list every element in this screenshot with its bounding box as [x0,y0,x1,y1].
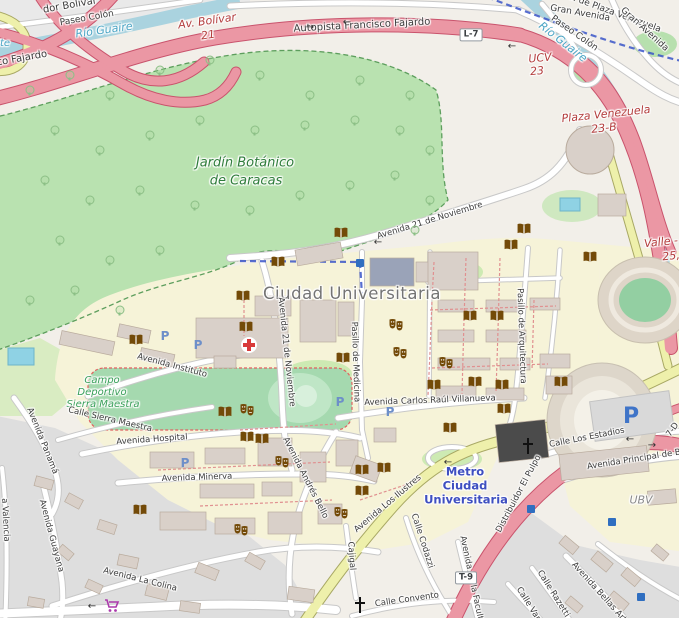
street-label: Avenida 21 de Noviembre [276,297,296,407]
campus-label: UBV [629,495,652,506]
tree-icon [426,146,435,155]
motorway-ref-label: 21 [200,29,215,42]
tree-icon [146,131,155,140]
tree-icon [391,171,400,180]
sportsground-name-label: Deportivo [77,388,126,398]
oneway-arrow-icon: ← [343,18,351,28]
tree-icon [246,206,255,215]
theatre-masks-icon [389,319,404,332]
tree-icon [306,91,315,100]
street-label: Calle Razetti [535,569,571,618]
church-cross-icon [522,438,534,454]
library-book-icon [583,251,598,264]
tree-icon [251,126,260,135]
church-cross-icon [354,597,366,613]
oneway-arrow-icon: ← [444,458,452,468]
tree-icon [356,76,365,85]
tree-icon [106,256,115,265]
street-label: Calle Convento [374,591,439,608]
street-label: Avenida 21 de Noviembre [376,201,484,241]
water-label: te [0,39,10,49]
tree-icon [406,91,415,100]
library-book-icon [355,485,370,498]
street-label: a Valencia [0,498,10,542]
tree-icon [411,226,420,235]
street-label: Avenida Bellas Artes [570,561,635,618]
map-labels-layer: Jardín Botánicode CaracasCampoDeportivoS… [0,0,679,618]
oneway-arrow-icon: → [306,23,314,33]
library-book-icon [271,256,286,269]
street-label: co Fajardo [0,50,48,69]
library-book-icon [463,310,478,323]
street-label: Pasillo de Arquitectura [515,288,527,384]
motorway-ref-label: 25, [662,250,679,263]
tree-icon [116,306,125,315]
theatre-masks-icon [439,357,454,370]
road-ref-badge: L-7 [460,28,483,41]
street-label: Avenida La Colina [102,567,178,594]
map-canvas[interactable]: Jardín Botánicode CaracasCampoDeportivoS… [0,0,679,618]
metro-station-label: Universitaria [424,494,508,506]
park-name-label: Jardín Botánico [196,157,294,170]
street-label: Pasillo de Medicina [349,322,360,403]
street-label: Avenida Carlos Raúl Villanueva [364,394,496,407]
street-label: Avenida Andrés Bello [281,436,329,520]
tree-icon [206,56,215,65]
library-book-icon [239,321,254,334]
street-label: Avenida Principal de B [587,448,679,471]
oneway-arrow-icon: ← [626,435,634,445]
theatre-masks-icon [234,524,249,537]
street-label: Avenida Instituto [136,353,208,380]
tree-icon [26,86,35,95]
street-label: Cajigal [346,541,356,570]
parking-icon: P [336,396,345,408]
tree-icon [86,196,95,205]
park-name-label: de Caracas [210,175,283,188]
library-book-icon [517,223,532,236]
street-label: Avenida Minerva [162,473,233,484]
library-book-icon [334,227,349,240]
hospital-cross-icon [241,337,258,354]
tree-icon [41,176,50,185]
street-label: Calle Codazzi [409,513,435,570]
library-book-icon [255,433,270,446]
library-book-icon [129,334,144,347]
library-book-icon [427,379,442,392]
library-book-icon [240,431,255,444]
tree-icon [156,66,165,75]
library-book-icon [490,310,505,323]
tree-icon [26,296,35,305]
oneway-arrow-icon: ← [88,602,96,612]
theatre-masks-icon [393,347,408,360]
library-book-icon [497,403,512,416]
motorway-ref-label: 23-B [591,121,618,135]
parking-icon: P [386,406,395,418]
street-label: Gran Avenida [618,6,669,53]
metro-station-icon [637,593,645,601]
oneway-arrow-icon: → [648,441,656,451]
theatre-masks-icon [334,507,349,520]
metro-station-icon [356,259,364,267]
tree-icon [56,236,65,245]
library-book-icon [377,462,392,475]
parking-icon: P [181,457,190,469]
parking-icon: P [194,339,203,351]
library-book-icon [443,422,458,435]
street-label: Calle Sierra Maestra [67,406,152,434]
motorway-ref-label: 23 [530,65,545,77]
library-book-icon [133,504,148,517]
library-book-icon [504,239,519,252]
tree-icon [256,71,265,80]
tree-icon [346,181,355,190]
street-label: Avenida Guayana [37,499,65,573]
theatre-masks-icon [275,456,290,469]
library-book-icon [218,406,233,419]
street-label: Avenida Panamá [25,407,59,476]
library-book-icon [495,379,510,392]
sportsground-name-label: Campo [84,376,119,386]
parking-main-icon: P [623,406,639,428]
street-label: 7-D [665,421,679,438]
motorway-ref-label: UCV [528,52,552,65]
tree-icon [51,126,60,135]
tree-icon [426,196,435,205]
motorway-ref-label: Valle - [644,235,679,249]
road-ref-badge: T-9 [455,571,477,584]
street-label: Calle Var [514,586,541,618]
library-book-icon [554,376,569,389]
street-label: Calle Los Estadios [549,427,626,450]
tree-icon [191,201,200,210]
oneway-arrow-icon: ← [374,238,382,248]
theatre-masks-icon [240,404,255,417]
oneway-arrow-icon: ← [508,42,516,52]
tree-icon [136,186,145,195]
tree-icon [66,71,75,80]
library-book-icon [355,464,370,477]
tree-icon [351,116,360,125]
supermarket-cart-icon [104,599,120,613]
tree-icon [296,191,305,200]
tree-icon [106,91,115,100]
metro-station-icon [527,505,535,513]
metro-station-label: Ciudad [443,480,488,492]
street-label: Avenida Hospital [116,433,188,446]
district-label: Ciudad Universitaria [263,286,441,303]
tree-icon [196,116,205,125]
tree-icon [156,246,165,255]
tree-icon [301,121,310,130]
metro-station-icon [608,518,616,526]
tree-icon [71,286,80,295]
library-book-icon [336,352,351,365]
library-book-icon [236,290,251,303]
parking-icon: P [161,330,170,342]
library-book-icon [468,376,483,389]
tree-icon [96,146,105,155]
tree-icon [396,126,405,135]
